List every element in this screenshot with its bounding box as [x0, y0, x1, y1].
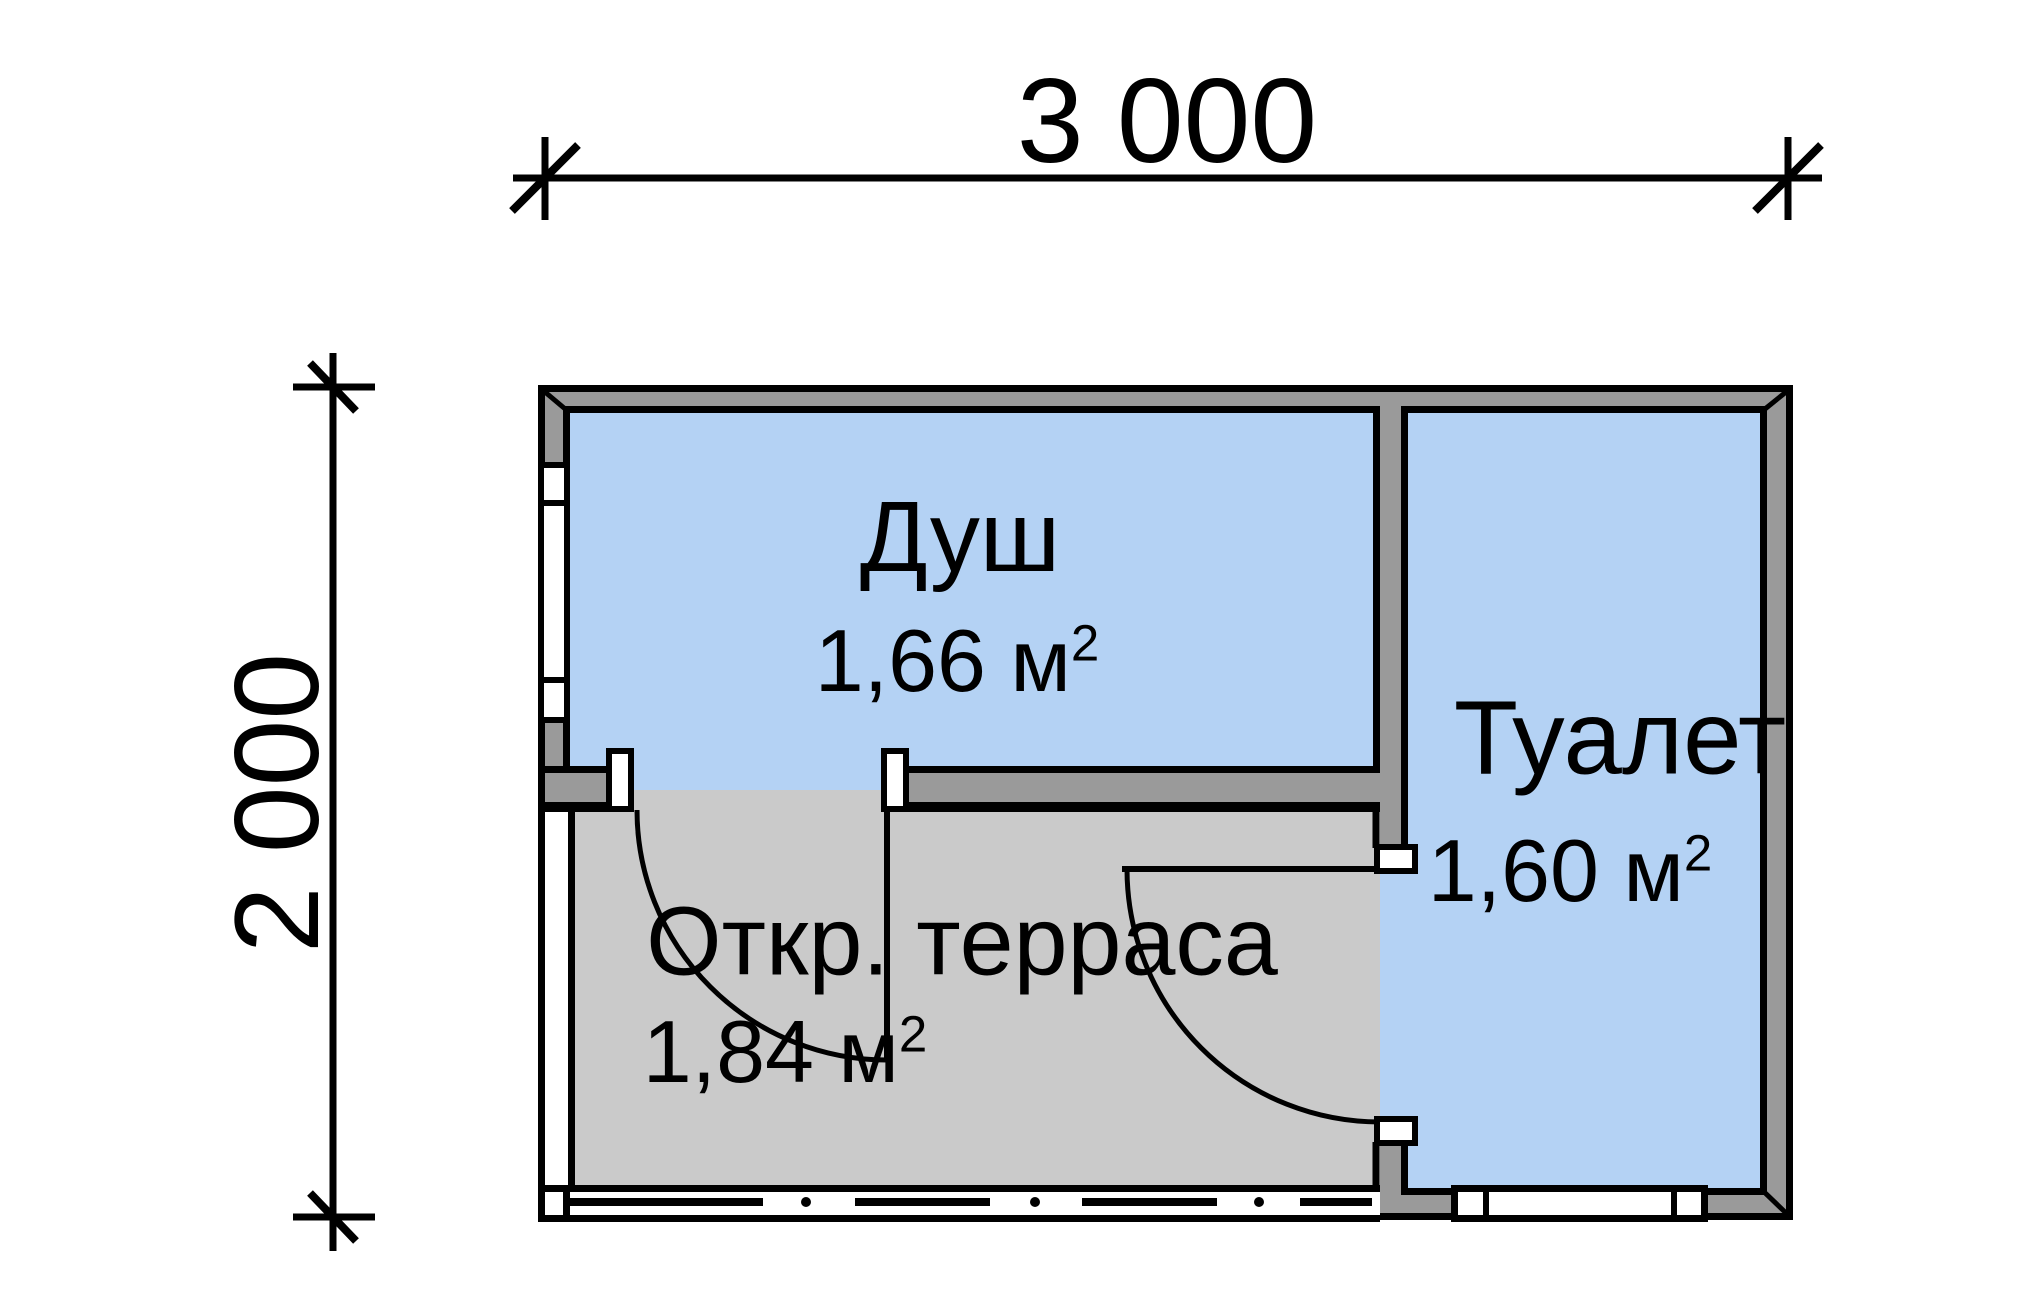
room-area-terrace-exponent: 2	[899, 1006, 927, 1063]
dimension-width-label: 3 000	[1017, 61, 1317, 181]
room-area-toilet-exponent: 2	[1684, 825, 1712, 882]
room-area-terrace: 1,84 м2	[643, 1008, 928, 1096]
room-area-terrace-value: 1,84 м	[643, 1002, 899, 1101]
terrace-edge-centerline	[563, 1197, 1372, 1207]
room-area-shower-value: 1,66 м	[815, 611, 1071, 710]
dimension-height-label: 2 000	[217, 653, 337, 953]
room-label-toilet: Туалет	[1454, 686, 1786, 791]
room-area-shower-exponent: 2	[1071, 615, 1099, 672]
room-label-terrace: Откр. терраса	[646, 893, 1278, 990]
floor-plan-canvas: 3 000 2 000 Душ 1,66 м2 Туалет 1,60 м2 О…	[0, 0, 2033, 1308]
room-label-shower: Душ	[860, 487, 1060, 587]
room-area-toilet: 1,60 м2	[1428, 827, 1713, 915]
room-area-toilet-value: 1,60 м	[1428, 821, 1684, 920]
room-area-shower: 1,66 м2	[815, 617, 1100, 705]
